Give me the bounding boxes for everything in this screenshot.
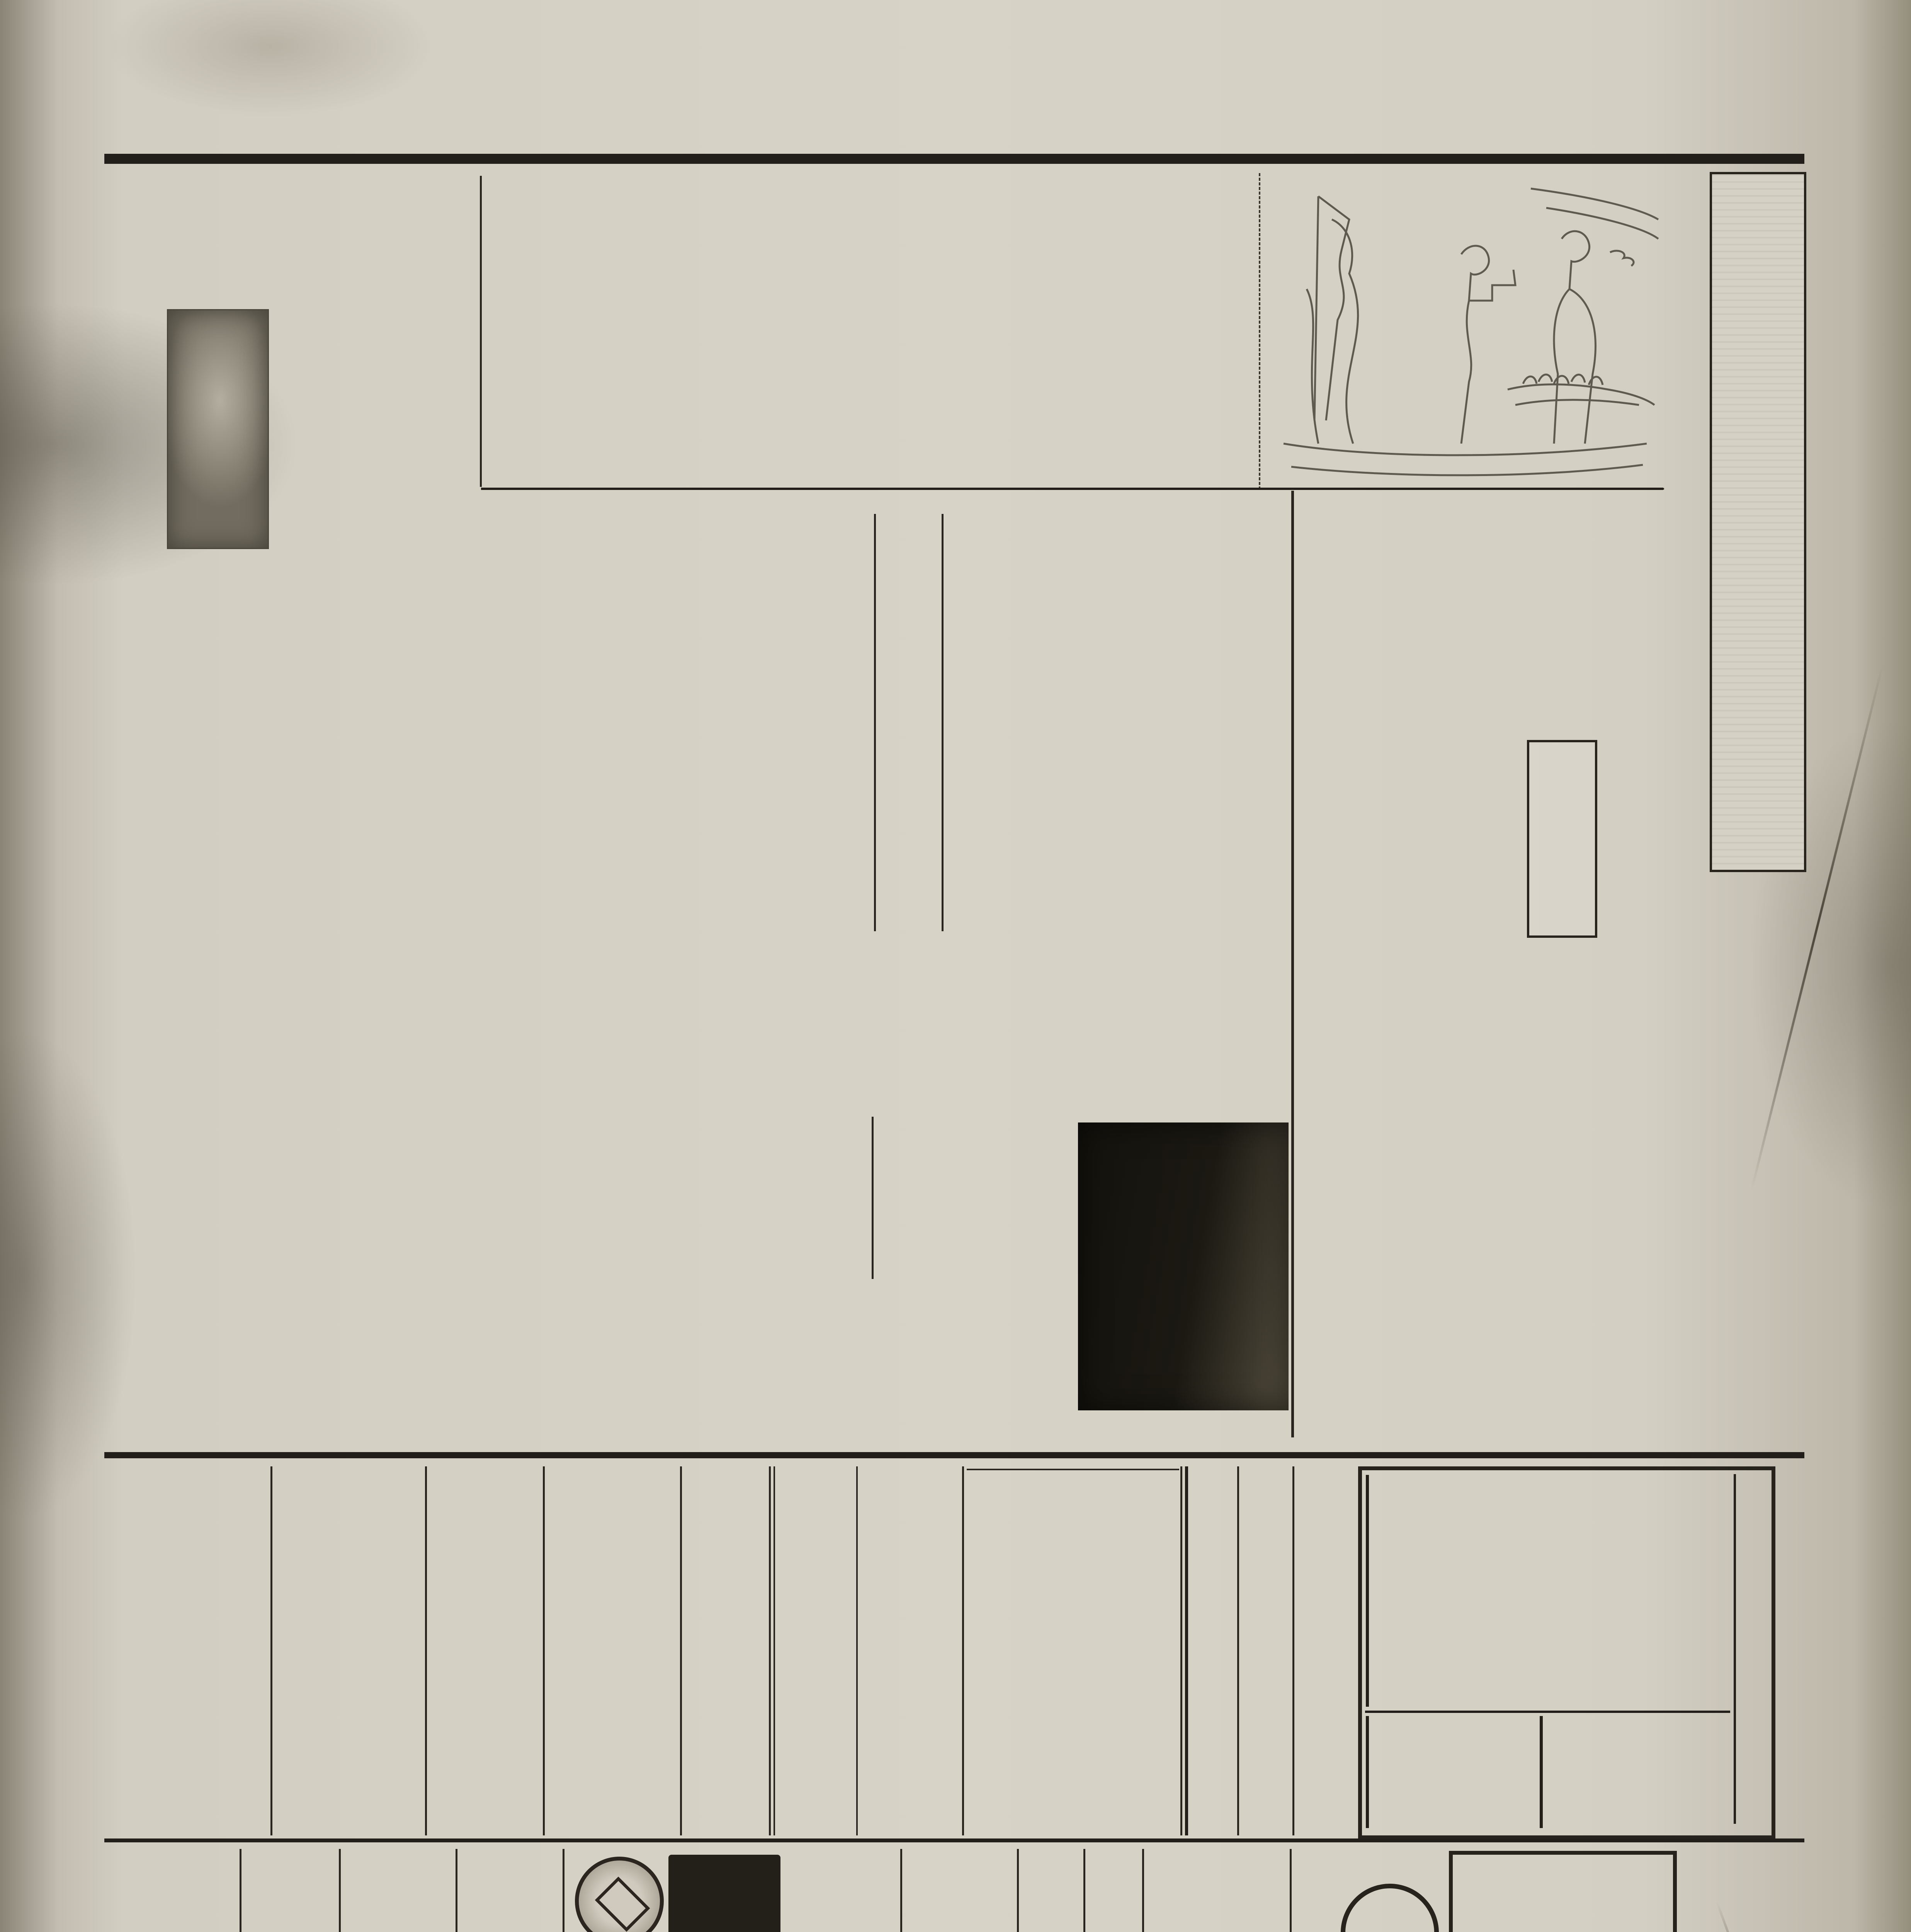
fire-title (865, 1117, 874, 1279)
ad-rule (543, 1466, 545, 1835)
ad-zhongxi-cinema (1242, 1466, 1292, 1835)
ad-rule (563, 1849, 564, 1932)
ad-meifeng (788, 1849, 900, 1932)
ad-xingxing-troupe (547, 1466, 679, 1835)
ad-cinema-name (1366, 1475, 1369, 1707)
ad-qunle (774, 1466, 858, 1835)
ad-daguangming (1366, 1716, 1536, 1828)
ad-fuying-hospital (343, 1849, 456, 1932)
ad-rule (1290, 1849, 1292, 1932)
fire-columns (925, 1107, 1068, 1339)
ad-zhangtang (1675, 1849, 1787, 1932)
ad-fenghuang (905, 1849, 1017, 1932)
ad-songpeiru (244, 1849, 339, 1932)
article-rule (1291, 491, 1294, 1437)
ad-rule (339, 1849, 341, 1932)
ad-rule (425, 1466, 427, 1835)
chain-label (1734, 1474, 1741, 1824)
ad-feilao-box (1449, 1851, 1677, 1932)
ad-rule (1017, 1849, 1019, 1932)
ad-rule (962, 1466, 964, 1835)
ad-text (211, 1466, 269, 1835)
ad-cast (967, 1470, 1000, 1791)
ad-text (1459, 1861, 1559, 1932)
ad-lihua-store (430, 1466, 542, 1835)
ad-renji-clinic (1147, 1849, 1290, 1932)
ad-shuangqian (567, 1849, 664, 1932)
newspaper-page (0, 0, 1911, 1932)
ad-hongbao (668, 1855, 780, 1932)
ad-wutian-duanyin (116, 1466, 269, 1835)
film-set-sketch (1259, 173, 1664, 490)
pan-side-columns (1600, 740, 1708, 933)
ad-feilongge (685, 1466, 768, 1835)
ad-rule (680, 1466, 682, 1835)
ad-libaiyao (275, 1466, 424, 1835)
ad-tongfu (1294, 1849, 1445, 1932)
ad-dahua (1513, 1475, 1729, 1707)
ad-text (244, 1849, 287, 1932)
masthead-rule (104, 154, 1804, 164)
wang-columns (1298, 951, 1491, 1434)
ad-rule (1142, 1849, 1144, 1932)
wutai-columns-2 (116, 1082, 475, 1435)
ad-rule (1292, 1466, 1294, 1835)
ad-donghe-cinema (1297, 1466, 1353, 1835)
ad-rule (456, 1849, 457, 1932)
ads-top-rule (104, 1452, 1804, 1458)
ad-rule (900, 1849, 902, 1932)
ad-mingxing (860, 1466, 960, 1835)
ad-rongbaozhai (460, 1849, 563, 1932)
jingu-right-columns (947, 502, 1287, 935)
ad-text (275, 1466, 341, 1835)
top-left-columns (270, 176, 479, 678)
dark-photo (1078, 1122, 1289, 1410)
mid-columns (481, 947, 860, 1435)
portrait-photo (167, 309, 269, 549)
ad-nanjing-theatre (967, 1466, 1179, 1835)
chain-divider (1365, 1711, 1730, 1713)
ad-xinzhongyang (1366, 1475, 1509, 1707)
feature-essay-columns (485, 176, 1103, 485)
ad-cinema-name (1540, 1716, 1543, 1828)
ad-cinema-name (1366, 1716, 1369, 1828)
ad-rule (1237, 1466, 1239, 1835)
jingu-title-box (874, 514, 944, 931)
column-rule (480, 176, 482, 487)
ad-guoji-cinema (1185, 1466, 1237, 1835)
band-rule (104, 1838, 1804, 1842)
feature-headline-box (1710, 172, 1806, 872)
poem-text (1115, 379, 1242, 487)
shuangqian-logo (575, 1857, 664, 1932)
ad-theatre-name (967, 1466, 1179, 1470)
pan-news-box (1527, 740, 1597, 938)
sketch-drawing (1260, 173, 1664, 488)
ad-rule (1083, 1849, 1085, 1932)
ad-heshi (1088, 1849, 1142, 1932)
ad-cinema-name (1185, 1466, 1188, 1835)
ad-rule (1180, 1466, 1182, 1835)
ad-yuerong (1022, 1849, 1083, 1932)
section-rule (481, 488, 1663, 490)
ad-rule (769, 1466, 771, 1835)
ad-text (460, 1849, 503, 1932)
ad-zhonghua (1540, 1716, 1729, 1828)
tongfu-logo (1341, 1884, 1439, 1932)
above-photo-columns (1097, 951, 1287, 1113)
feature-headline (1713, 184, 1803, 856)
ad-text (676, 1862, 707, 1932)
brief-columns (925, 1345, 1068, 1434)
ad-rule (270, 1466, 272, 1835)
cinema-chain-frame (1358, 1466, 1775, 1839)
jingu-left-columns (591, 502, 862, 935)
ad-linsu-hospital (116, 1849, 240, 1932)
wutai-columns (116, 696, 313, 1078)
ad-rule (240, 1849, 241, 1932)
